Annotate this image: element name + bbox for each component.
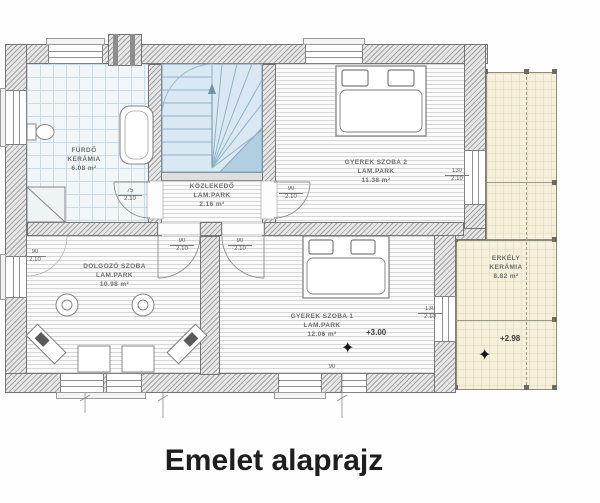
study-desk-right: [167, 324, 207, 364]
dim-childroom1-window: 130 2.10: [418, 306, 442, 321]
room-area: 11.38 m²: [320, 176, 432, 185]
study-chair-left: [56, 294, 78, 316]
bed-childroom1: [303, 236, 389, 298]
room-finish: KERÁMIA: [470, 263, 542, 272]
room-label-childroom2: GYEREK SZOBA 2 LAM.PARK 11.38 m²: [320, 158, 432, 185]
study-table-left: [78, 346, 110, 372]
room-finish: LAM.PARK: [162, 191, 262, 200]
room-label-bathroom: FÜRDŐ KERÁMIA 6.08 m²: [34, 146, 134, 173]
level-marker-icon: ✦: [478, 348, 491, 364]
staircase: [162, 64, 262, 172]
toilet: [27, 124, 54, 140]
shower: [27, 187, 65, 222]
room-area: 8.82 m²: [470, 272, 542, 281]
dim-childroom2-window: 130 2.10: [445, 168, 469, 183]
bed-childroom2: [336, 66, 426, 136]
room-finish: KERÁMIA: [34, 155, 134, 164]
study-desk-left: [26, 324, 66, 364]
room-finish: LAM.PARK: [266, 321, 378, 330]
study-chair-right: [132, 294, 154, 316]
room-name: FÜRDŐ: [34, 146, 134, 155]
study-table-right: [122, 346, 154, 372]
level-marker-icon: ✦: [341, 341, 354, 357]
room-area: 2.16 m²: [162, 200, 262, 209]
room-label-study: DOLGOZÓ SZOBA LAM.PARK 10.98 m²: [62, 262, 167, 289]
floor-plan-page: FÜRDŐ KERÁMIA 6.08 m² KÖZLEKEDŐ LAM.PARK…: [0, 0, 600, 503]
plan-title: Emelet alaprajz: [0, 444, 548, 478]
dim-study-door: 90 2.10: [170, 238, 194, 253]
dim-terrace-door: 90: [322, 364, 342, 371]
plan-drawing-layer: [0, 0, 600, 440]
room-label-childroom1: GYEREK SZOBA 1 LAM.PARK 12.06 m²: [266, 312, 378, 339]
room-finish: LAM.PARK: [320, 167, 432, 176]
room-name: GYEREK SZOBA 2: [320, 158, 432, 167]
room-finish: LAM.PARK: [62, 271, 167, 280]
room-area: 12.06 m²: [266, 330, 378, 339]
room-area: 10.98 m²: [62, 280, 167, 289]
room-label-balcony: ERKÉLY KERÁMIA 8.82 m²: [470, 254, 542, 281]
room-name: KÖZLEKEDŐ: [162, 182, 262, 191]
room-label-hallway: KÖZLEKEDŐ LAM.PARK 2.16 m²: [162, 182, 262, 209]
room-area: 6.08 m²: [34, 164, 134, 173]
dim-childroom1-door: 90 2.10: [228, 238, 252, 253]
level-value-balcony: +2.98: [500, 334, 520, 343]
room-name: GYEREK SZOBA 1: [266, 312, 378, 321]
dimension-extension-lines: [80, 373, 347, 418]
dim-study-window: 90 2.10: [24, 249, 46, 264]
dim-bathroom-door: 75 2.10: [118, 188, 142, 203]
room-name: ERKÉLY: [470, 254, 542, 263]
dim-childroom2-door: 90 2.10: [279, 186, 303, 201]
room-name: DOLGOZÓ SZOBA: [62, 262, 167, 271]
level-value-childroom1: +3.00: [366, 328, 386, 337]
